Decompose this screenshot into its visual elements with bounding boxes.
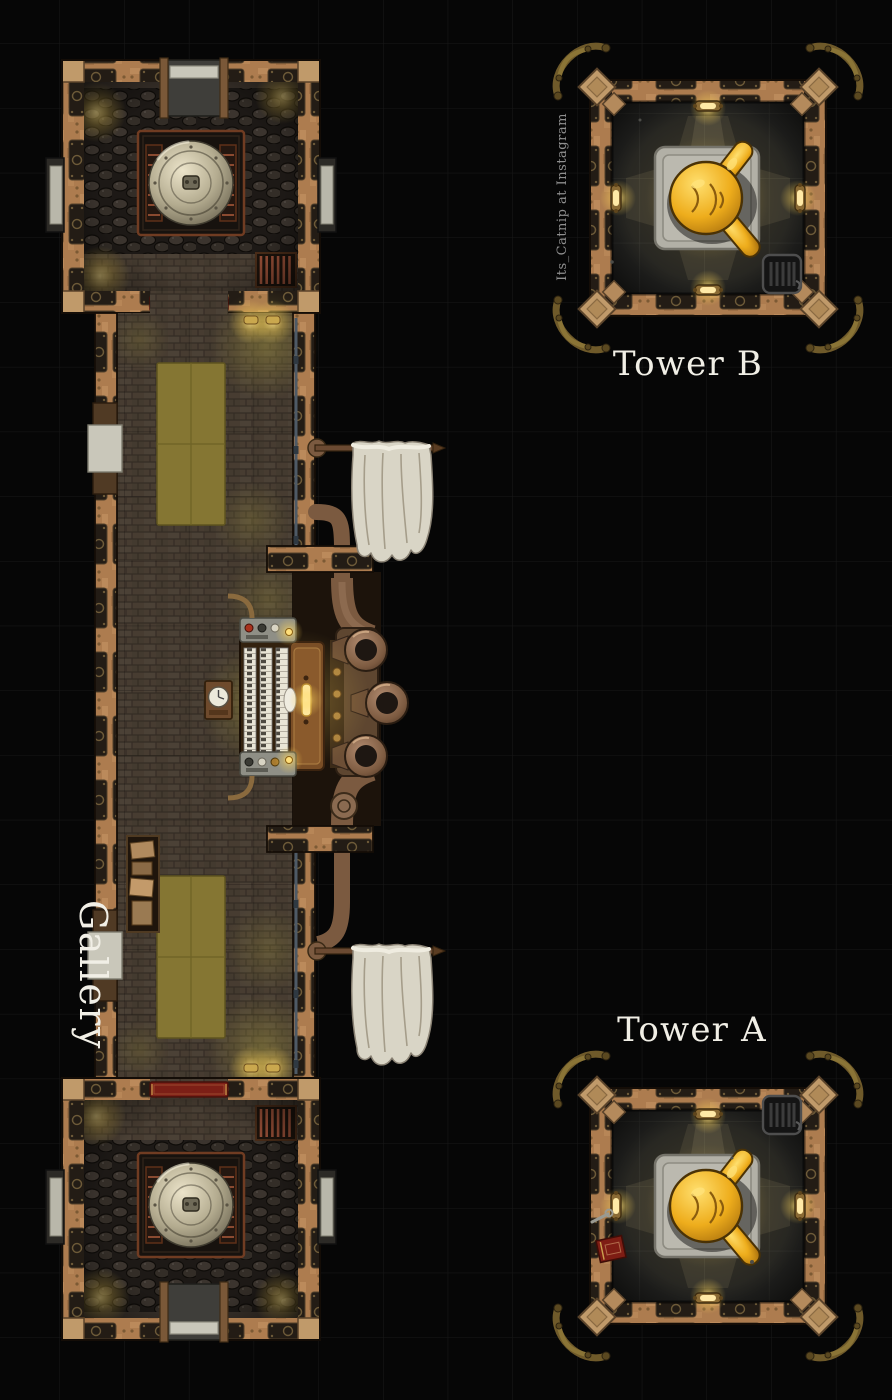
tower-a-label: Tower A bbox=[617, 1010, 767, 1050]
gallery-label: Gallery bbox=[71, 900, 115, 1050]
tower-b-shell bbox=[554, 44, 862, 352]
hall-west-door-north bbox=[88, 403, 122, 494]
tower-b-radiator bbox=[763, 255, 801, 293]
north-boiler-room bbox=[46, 58, 336, 313]
south-boiler-room bbox=[46, 1078, 336, 1342]
north-door bbox=[160, 58, 228, 118]
rug-south bbox=[157, 876, 225, 1038]
tower-a bbox=[554, 1052, 862, 1360]
red-book bbox=[596, 1236, 626, 1263]
map-canvas: Tower B Tower A Gallery Its_Catnip at In… bbox=[0, 0, 892, 1400]
east-side-door bbox=[318, 158, 336, 232]
rug-north bbox=[157, 363, 225, 525]
wall-clock bbox=[205, 681, 232, 719]
tower-a-shell bbox=[554, 1052, 862, 1360]
tower-b-label: Tower B bbox=[613, 344, 763, 384]
tower-a-radiator bbox=[763, 1096, 801, 1134]
south-door bbox=[160, 1282, 228, 1342]
tower-b bbox=[554, 44, 862, 352]
east-side-door bbox=[318, 1170, 336, 1244]
battle-map: Tower B Tower A Gallery Its_Catnip at In… bbox=[0, 0, 892, 1400]
west-side-door bbox=[46, 1170, 64, 1244]
watermark: Its_Catnip at Instagram bbox=[555, 113, 570, 281]
west-side-door bbox=[46, 158, 64, 232]
wall-stub-south bbox=[267, 826, 373, 852]
storage-shelf bbox=[127, 836, 159, 932]
hall-lamp-north bbox=[229, 300, 295, 344]
